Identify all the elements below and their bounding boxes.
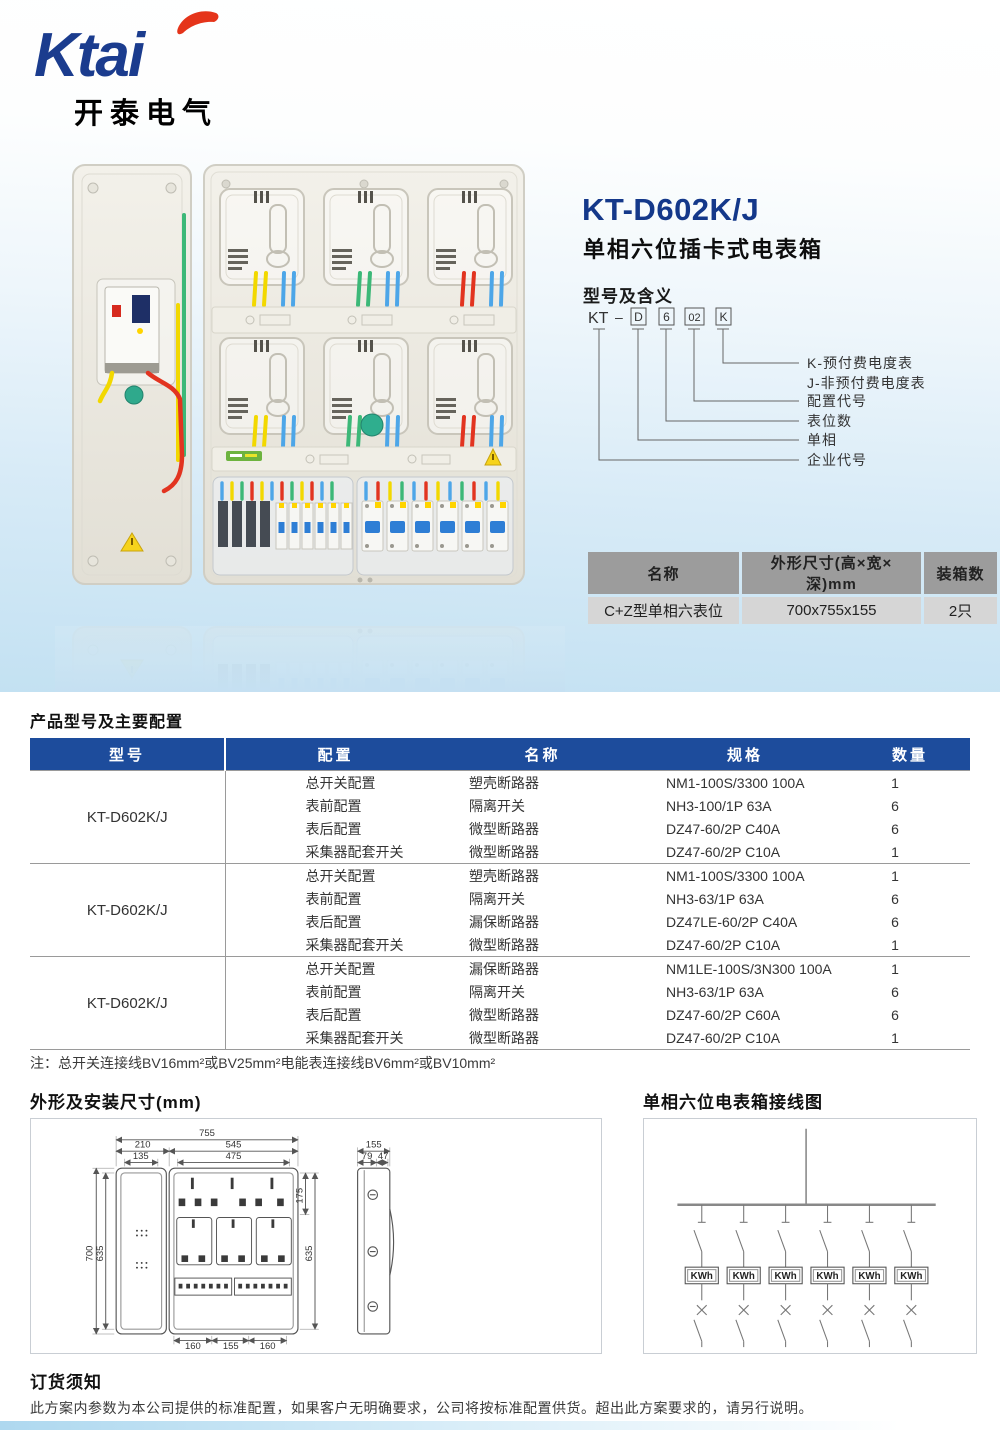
model-box: 6	[663, 310, 670, 324]
col-header: 数量	[850, 738, 970, 771]
col-header: 配置	[225, 738, 445, 771]
spec-table: 名称 外形尺寸(高×宽×深)mm 装箱数 C+Z型单相六表位 700x755x1…	[585, 549, 1000, 627]
name-cell: 微型断路器	[445, 1003, 640, 1026]
name-cell: 漏保断路器	[445, 957, 640, 981]
breaker	[437, 501, 458, 551]
logo-chinese-name: 开泰电气	[74, 90, 218, 132]
order-notice-title: 订货须知	[30, 1368, 102, 1393]
config-group: KT-D602K/J 总开关配置 塑壳断路器 NM1-100S/3300 100…	[30, 864, 970, 957]
name-cell: 微型断路器	[445, 840, 640, 864]
spec-cell: DZ47-60/2P C10A	[640, 840, 850, 864]
wiring-diagram-panel: KWh KWh KWh KWh KWh KWh	[643, 1118, 977, 1354]
model-box: 02	[688, 312, 700, 324]
breaker-compartment-right	[357, 477, 513, 575]
table-row: KT-D602K/J 总开关配置 漏保断路器 NM1LE-100S/3N300 …	[30, 957, 970, 981]
kwh-meter-label: KWh	[733, 1271, 755, 1282]
dim-label: 155	[223, 1341, 239, 1351]
model-cell: KT-D602K/J	[30, 864, 225, 957]
model-box: D	[634, 310, 643, 324]
qty-cell: 6	[850, 980, 970, 1003]
spec-row: C+Z型单相六表位 700x755x155 2只	[588, 597, 997, 624]
breaker	[487, 501, 508, 551]
spec-cell: NH3-63/1P 63A	[640, 980, 850, 1003]
dim-label: 635	[304, 1246, 315, 1262]
kwh-meter-label: KWh	[775, 1271, 797, 1282]
dimension-drawing-panel: 755 210 545 135 475 700 635 175 635 160 …	[30, 1118, 602, 1354]
dimension-drawing: 755 210 545 135 475 700 635 175 635 160 …	[31, 1119, 599, 1351]
config-cell: 采集器配套开关	[225, 933, 445, 957]
spec-cell: NM1-100S/3300 100A	[640, 771, 850, 795]
qty-cell: 6	[850, 794, 970, 817]
spec-cell: DZ47-60/2P C10A	[640, 933, 850, 957]
name-cell: 漏保断路器	[445, 910, 640, 933]
name-cell: 隔离开关	[445, 887, 640, 910]
name-cell: 微型断路器	[445, 817, 640, 840]
config-cell: 采集器配套开关	[225, 840, 445, 864]
spec-cell: NM1LE-100S/3N300 100A	[640, 957, 850, 981]
wiring-title: 单相六位电表箱接线图	[643, 1088, 823, 1113]
model-dash: –	[615, 309, 623, 325]
spec-cell: DZ47-60/2P C40A	[640, 817, 850, 840]
name-cell: 隔离开关	[445, 794, 640, 817]
model-meaning-diagram: KT – D 6 02 K K-预付费电度表 J-非预付费电度表	[585, 300, 985, 478]
logo-text: Ktai	[34, 21, 147, 90]
config-cell: 表前配置	[225, 887, 445, 910]
config-cell: 总开关配置	[225, 957, 445, 981]
breaker	[362, 501, 383, 551]
meaning-label: J-非预付费电度表	[807, 375, 926, 391]
spec-cell: NM1-100S/3300 100A	[640, 864, 850, 888]
hero-section: Ktai 开泰电气	[0, 0, 1000, 692]
config-cell: 总开关配置	[225, 864, 445, 888]
dimensions-title: 外形及安装尺寸(mm)	[30, 1088, 202, 1113]
bottom-gradient-strip	[0, 1421, 1000, 1430]
config-cell: 表后配置	[225, 910, 445, 933]
spec-cell: NH3-100/1P 63A	[640, 794, 850, 817]
dim-label: 79	[362, 1151, 373, 1162]
qty-cell: 1	[850, 933, 970, 957]
config-group: KT-D602K/J 总开关配置 塑壳断路器 NM1-100S/3300 100…	[30, 771, 970, 864]
product-photo	[60, 155, 560, 625]
dim-label: 47	[378, 1151, 389, 1162]
qty-cell: 6	[850, 1003, 970, 1026]
name-cell: 塑壳断路器	[445, 864, 640, 888]
reflection-fade	[55, 626, 565, 692]
table-row: KT-D602K/J 总开关配置 塑壳断路器 NM1-100S/3300 100…	[30, 771, 970, 795]
model-cell: KT-D602K/J	[30, 771, 225, 864]
meter-window	[220, 338, 304, 434]
meaning-label: 配置代号	[807, 393, 867, 409]
config-cell: 采集器配套开关	[225, 1026, 445, 1050]
dim-label: 160	[260, 1341, 276, 1351]
logo-ktai-icon: Ktai	[28, 6, 258, 96]
config-cell: 总开关配置	[225, 771, 445, 795]
logo-flame-icon	[177, 11, 218, 34]
config-cell: 表前配置	[225, 794, 445, 817]
meaning-label: K-预付费电度表	[807, 355, 913, 371]
product-name: 单相六位插卡式电表箱	[583, 232, 823, 264]
product-model-title: KT-D602K/J	[582, 192, 759, 228]
meter-box-body	[204, 165, 524, 584]
qty-cell: 1	[850, 957, 970, 981]
name-cell: 隔离开关	[445, 980, 640, 1003]
meter-window	[324, 189, 408, 285]
spec-cell: NH3-63/1P 63A	[640, 887, 850, 910]
meaning-label: 表位数	[807, 413, 852, 429]
dim-label: 160	[185, 1341, 201, 1351]
qty-cell: 6	[850, 887, 970, 910]
dim-label: 475	[226, 1151, 242, 1162]
breaker-compartment-left	[213, 477, 353, 575]
lower-rail	[212, 447, 516, 471]
col-header: 名称	[445, 738, 640, 771]
col-header: 型号	[30, 738, 225, 771]
spec-cell: DZ47-60/2P C60A	[640, 1003, 850, 1026]
table-row: KT-D602K/J 总开关配置 塑壳断路器 NM1-100S/3300 100…	[30, 864, 970, 888]
config-table: 型号 配置 名称 规格 数量 KT-D602K/J 总开关配置 塑壳断路器 NM…	[30, 738, 970, 1050]
middle-rail	[212, 307, 516, 333]
qty-cell: 1	[850, 864, 970, 888]
spec-cell: 700x755x155	[742, 597, 921, 624]
meter-window	[428, 338, 512, 434]
catalog-page: Ktai 开泰电气	[0, 0, 1000, 1430]
config-note: 注：总开关连接线BV16mm²或BV25mm²电能表连接线BV6mm²或BV10…	[30, 1053, 495, 1073]
order-notice-text: 此方案内参数为本公司提供的标准配置，如果客户无明确要求，公司将按标准配置供货。超…	[30, 1398, 813, 1418]
qty-cell: 1	[850, 1026, 970, 1050]
dim-label: 210	[135, 1139, 151, 1150]
qty-cell: 6	[850, 817, 970, 840]
spec-cell: 2只	[924, 597, 997, 624]
spec-cell: DZ47LE-60/2P C40A	[640, 910, 850, 933]
config-cell: 表后配置	[225, 1003, 445, 1026]
breaker	[412, 501, 433, 551]
meter-window	[428, 189, 512, 285]
brand-logo: Ktai 开泰电气	[28, 6, 258, 126]
dim-label: 700	[84, 1246, 95, 1262]
qty-cell: 6	[850, 910, 970, 933]
config-cell: 表前配置	[225, 980, 445, 1003]
name-cell: 塑壳断路器	[445, 771, 640, 795]
kwh-meter-label: KWh	[858, 1271, 880, 1282]
model-cell: KT-D602K/J	[30, 957, 225, 1050]
dim-label: 155	[366, 1139, 382, 1150]
spec-cell: DZ47-60/2P C10A	[640, 1026, 850, 1050]
kwh-meter-label: KWh	[691, 1271, 713, 1282]
spec-header: 名称	[588, 552, 739, 594]
meter-window	[220, 189, 304, 285]
dim-label: 635	[95, 1246, 106, 1262]
dim-label: 545	[226, 1139, 242, 1150]
config-cell: 表后配置	[225, 817, 445, 840]
dim-label: 755	[199, 1128, 215, 1139]
spec-cell: C+Z型单相六表位	[588, 597, 739, 624]
wiring-diagram: KWh KWh KWh KWh KWh KWh	[644, 1119, 974, 1351]
meaning-label: 企业代号	[807, 452, 867, 468]
spec-header: 外形尺寸(高×宽×深)mm	[742, 552, 921, 594]
green-knob	[361, 414, 383, 436]
green-knob	[125, 386, 143, 404]
config-group: KT-D602K/J 总开关配置 漏保断路器 NM1LE-100S/3N300 …	[30, 957, 970, 1050]
door-panel	[73, 165, 191, 584]
name-cell: 微型断路器	[445, 1026, 640, 1050]
qty-cell: 1	[850, 840, 970, 864]
spec-header-row: 名称 外形尺寸(高×宽×深)mm 装箱数	[588, 552, 997, 594]
meaning-label: 单相	[807, 432, 837, 448]
main-breaker	[97, 279, 175, 385]
breaker	[387, 501, 408, 551]
config-section-title: 产品型号及主要配置	[30, 708, 183, 732]
col-header: 规格	[640, 738, 850, 771]
dim-label: 175	[295, 1188, 306, 1204]
qty-cell: 1	[850, 771, 970, 795]
spec-header: 装箱数	[924, 552, 997, 594]
breaker	[462, 501, 483, 551]
kwh-meter-label: KWh	[900, 1271, 922, 1282]
model-box: K	[719, 310, 727, 324]
name-cell: 微型断路器	[445, 933, 640, 957]
model-prefix: KT	[588, 310, 609, 327]
kwh-meter-label: KWh	[816, 1271, 838, 1282]
dim-label: 135	[133, 1151, 149, 1162]
config-header-row: 型号 配置 名称 规格 数量	[30, 738, 970, 771]
